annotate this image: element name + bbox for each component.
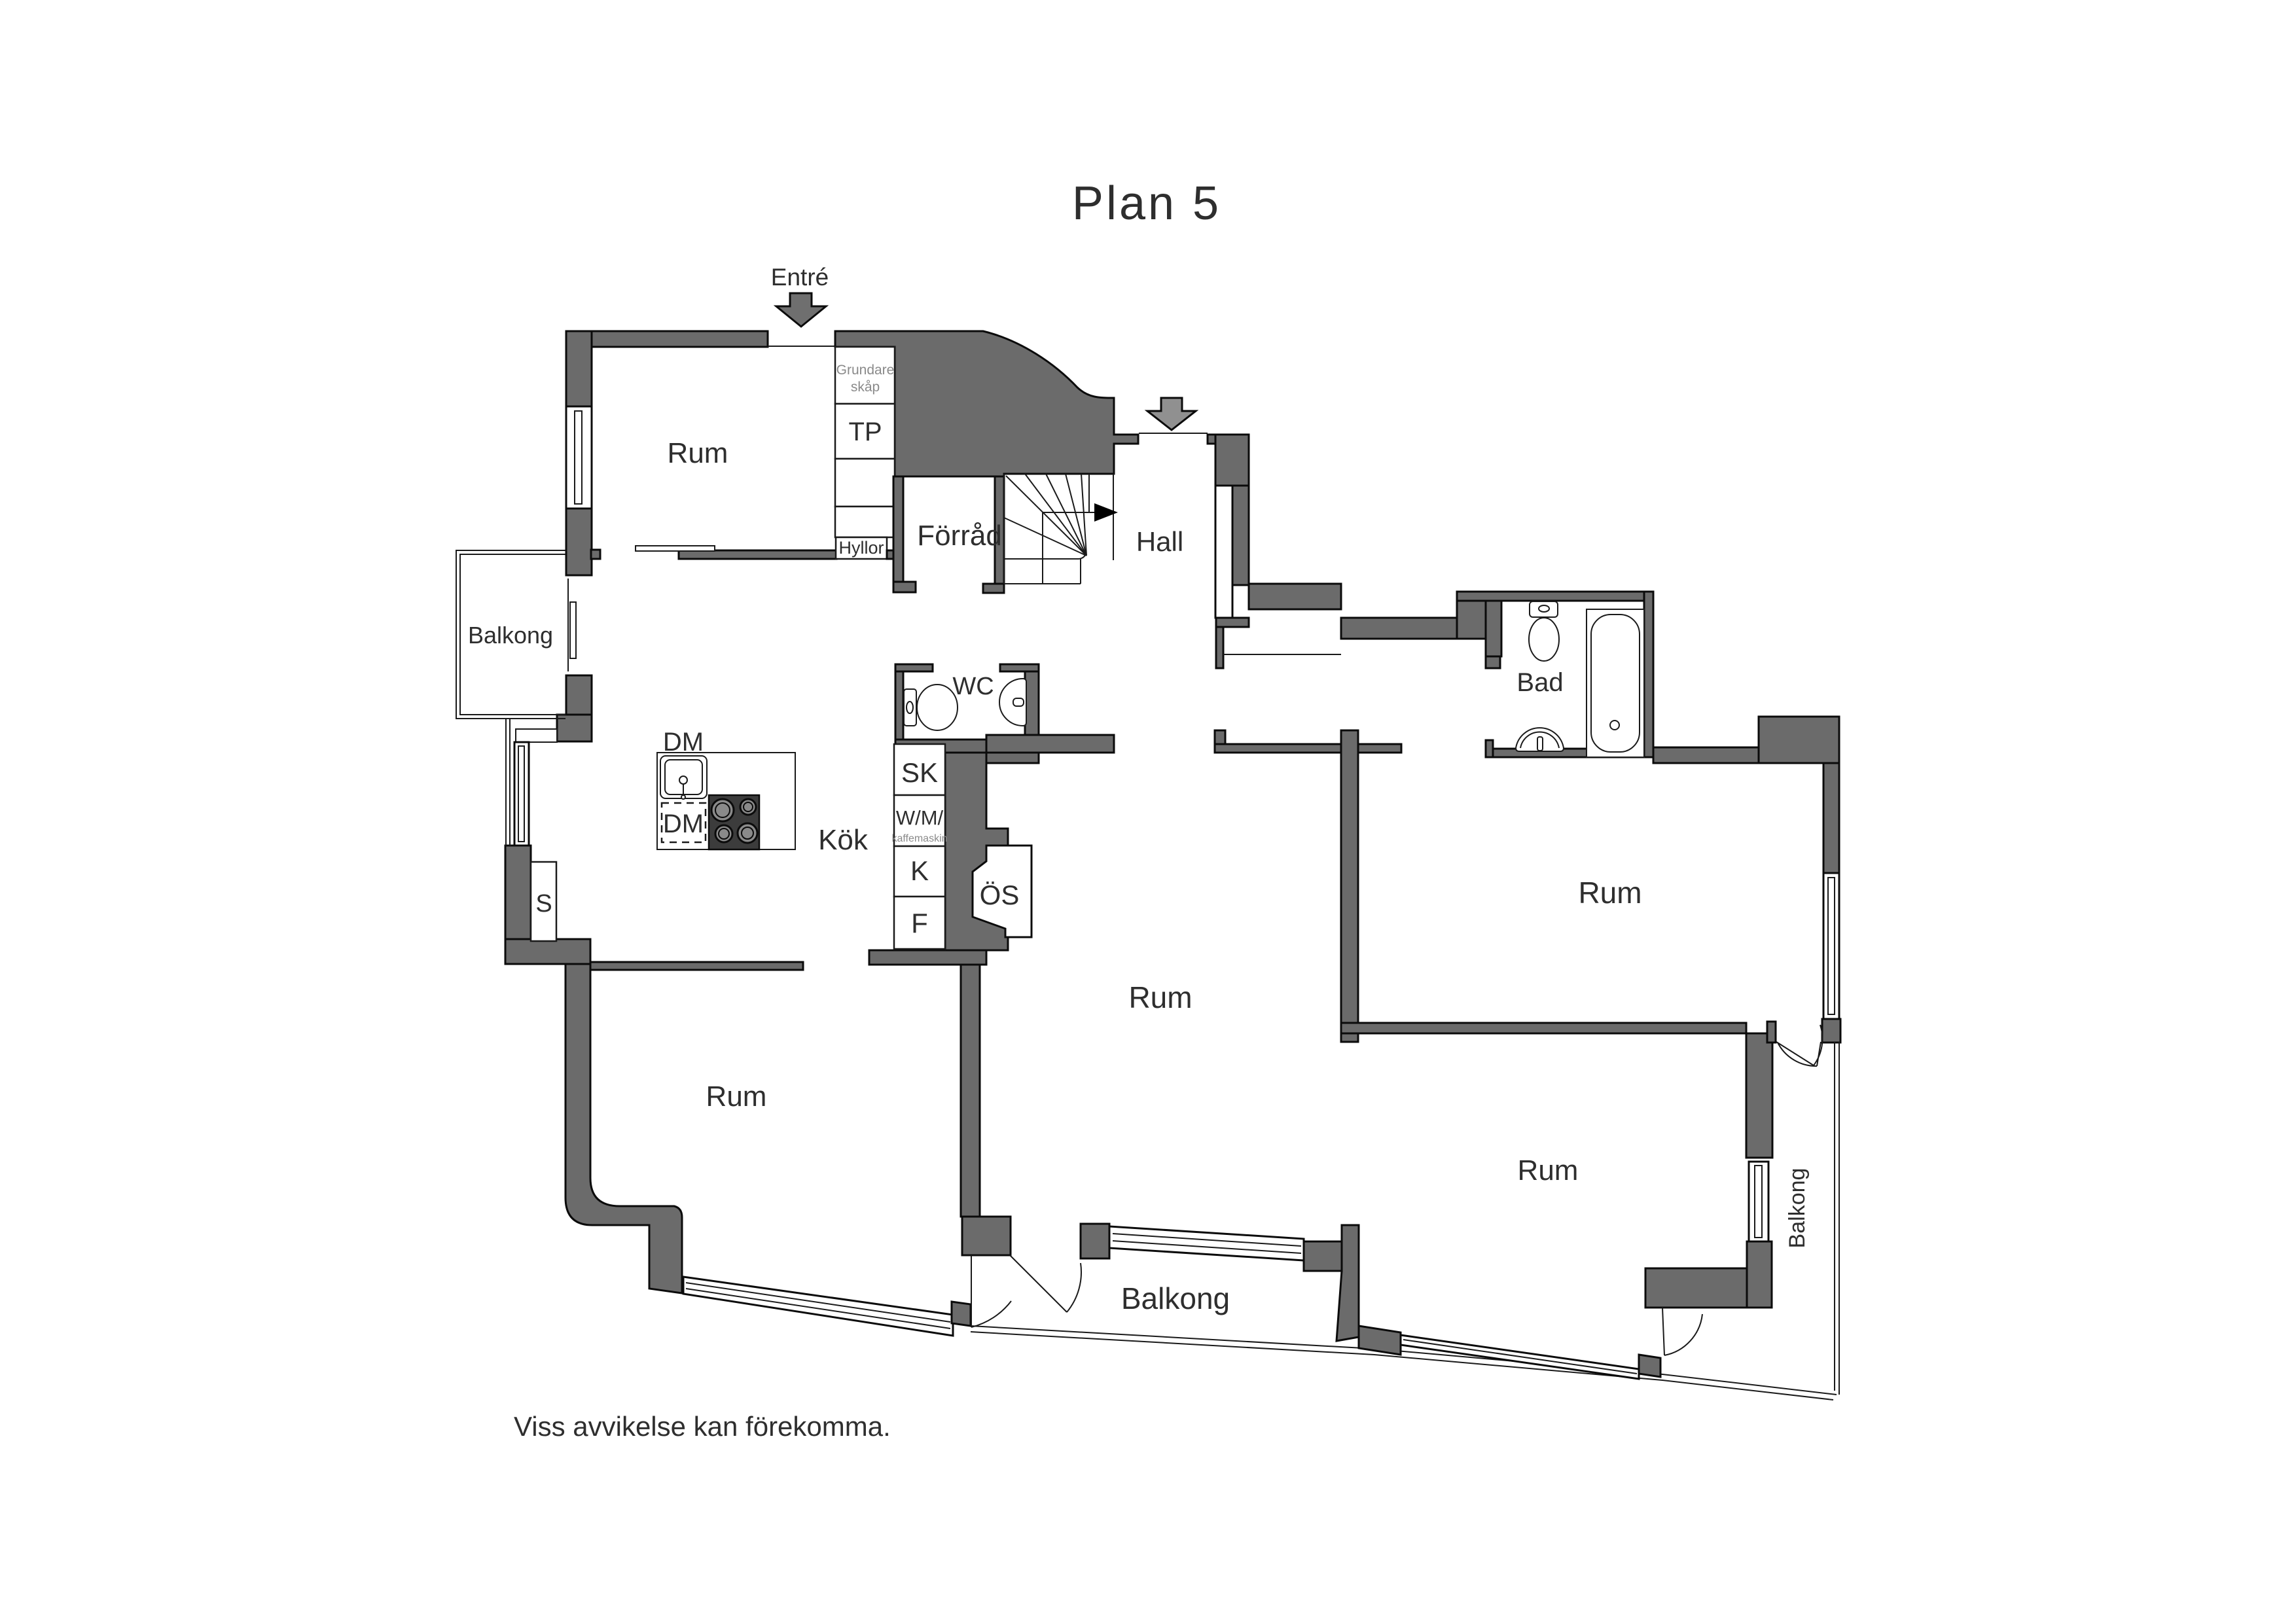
svg-text:WC: WC xyxy=(952,673,994,700)
svg-text:Rum: Rum xyxy=(1128,980,1192,1014)
svg-text:S: S xyxy=(535,890,552,918)
svg-text:Entré: Entré xyxy=(771,264,829,291)
svg-text:TP: TP xyxy=(848,418,882,446)
svg-text:ÖS: ÖS xyxy=(980,880,1020,910)
svg-text:K: K xyxy=(910,855,929,886)
svg-text:Rum: Rum xyxy=(668,437,728,469)
svg-text:Rum: Rum xyxy=(706,1080,767,1113)
svg-text:Plan 5: Plan 5 xyxy=(1072,177,1221,230)
svg-text:Balkong: Balkong xyxy=(1785,1168,1810,1249)
svg-text:DM: DM xyxy=(663,810,704,838)
svg-text:Balkong: Balkong xyxy=(468,622,553,649)
svg-text:Rum: Rum xyxy=(1578,876,1641,910)
svg-text:Hyllor: Hyllor xyxy=(838,538,884,558)
svg-text:Grundare: Grundare xyxy=(836,363,895,378)
svg-text:Balkong: Balkong xyxy=(1121,1281,1230,1315)
svg-text:Hall: Hall xyxy=(1136,526,1183,557)
svg-text:F: F xyxy=(911,908,928,938)
svg-text:SK: SK xyxy=(901,757,938,788)
svg-text:Viss avvikelse kan förekomma.: Viss avvikelse kan förekomma. xyxy=(514,1411,891,1442)
svg-text:Kök: Kök xyxy=(818,824,869,856)
svg-text:Förråd: Förråd xyxy=(917,520,1002,552)
svg-text:kaffemaskin: kaffemaskin xyxy=(891,833,947,844)
svg-text:Rum: Rum xyxy=(1518,1154,1579,1186)
svg-text:skåp: skåp xyxy=(851,380,880,395)
svg-text:W/M/: W/M/ xyxy=(896,806,944,829)
svg-text:DM: DM xyxy=(663,728,704,757)
svg-text:Bad: Bad xyxy=(1516,668,1563,697)
